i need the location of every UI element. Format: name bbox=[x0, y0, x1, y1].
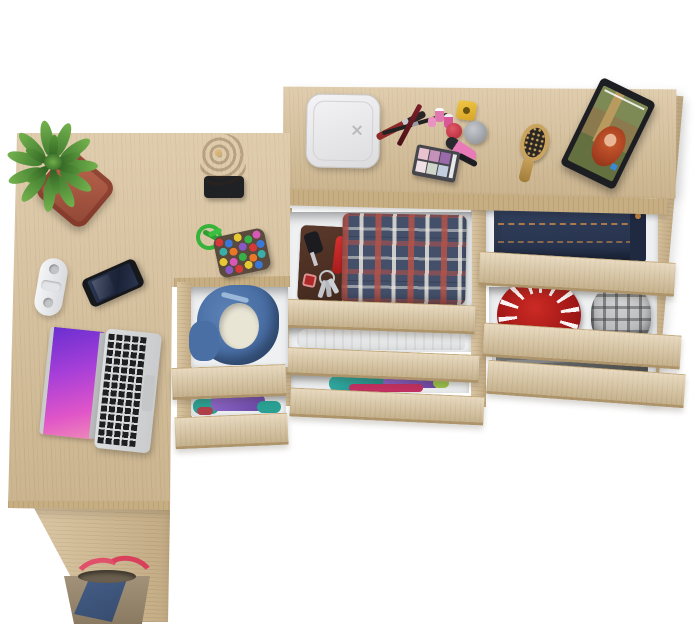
keyring-tag bbox=[302, 273, 317, 288]
wooden-stump bbox=[198, 134, 248, 200]
nail-polish-cap bbox=[428, 117, 436, 127]
polish-cap-dot bbox=[463, 107, 471, 115]
bag-opening bbox=[78, 570, 136, 583]
dresser-drawer-open bbox=[286, 212, 472, 305]
pouch-body bbox=[212, 227, 272, 279]
socket bbox=[42, 297, 54, 309]
potted-plant bbox=[30, 118, 126, 228]
nail-polish-cap bbox=[435, 108, 444, 122]
scale-inner-ring bbox=[312, 100, 373, 161]
nail-polish-yellow bbox=[456, 100, 477, 121]
drawer-front bbox=[289, 387, 484, 425]
screen-glare bbox=[92, 274, 117, 300]
strip-switch bbox=[40, 279, 61, 292]
video-icon bbox=[610, 163, 618, 171]
eyeshadow-pan bbox=[439, 152, 451, 165]
eyeshadow-pan bbox=[437, 165, 449, 178]
jeans-stitch bbox=[498, 223, 638, 225]
stump-log bbox=[200, 134, 246, 188]
hairbrush-handle bbox=[518, 156, 535, 183]
socket bbox=[48, 263, 60, 275]
scale-box bbox=[305, 93, 380, 168]
plant-center bbox=[44, 154, 62, 170]
laptop bbox=[38, 322, 162, 455]
cream-jar bbox=[464, 121, 487, 144]
handbag bbox=[60, 556, 154, 624]
plaid-shirt bbox=[341, 213, 467, 305]
scene bbox=[0, 0, 700, 624]
bead-pouch bbox=[192, 220, 272, 278]
jeans-stitch bbox=[498, 241, 642, 243]
